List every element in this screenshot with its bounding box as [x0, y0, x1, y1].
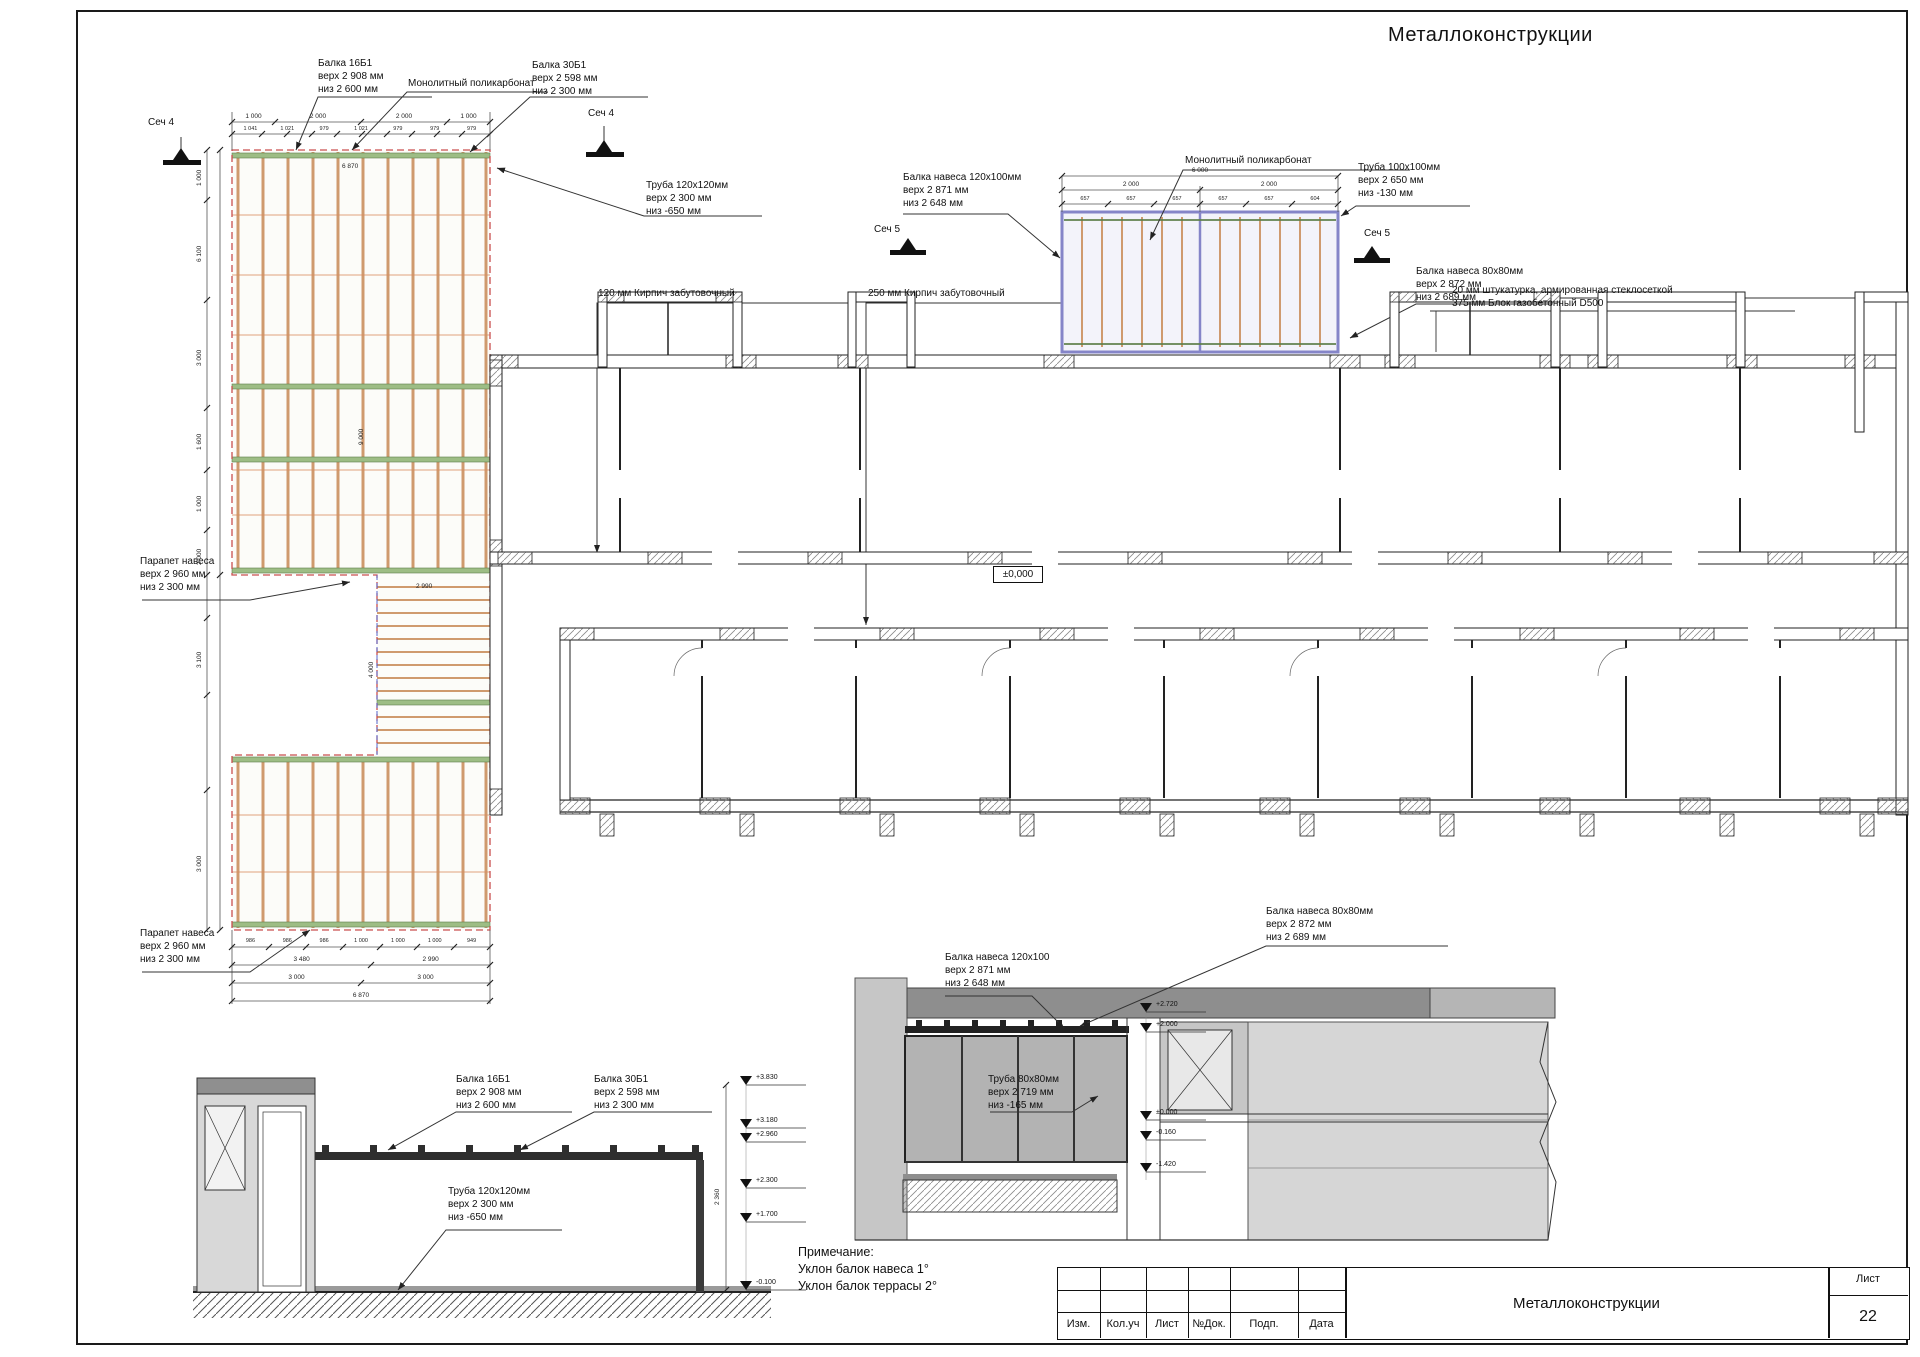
dimension-value: 1 000: [232, 113, 275, 120]
dimension-value: 3 480: [232, 956, 371, 963]
elevation-mark: +2.960: [756, 1131, 778, 1138]
dimension-value: 1 000: [416, 938, 453, 944]
dimension-value: 979: [416, 126, 453, 132]
dimension-value: 979: [379, 126, 416, 132]
label-line: верх 2 908 мм: [456, 1087, 522, 1100]
sheet-corner-title: Металлоконструкции: [1388, 24, 1593, 47]
dimension-value: 986: [269, 938, 306, 944]
label-line: Парапет навеса: [140, 556, 214, 569]
dimension-value: 1 041: [232, 126, 269, 132]
label-line: верх 2 300 мм: [646, 193, 728, 206]
label-line: верх 2 872 мм: [1266, 919, 1373, 932]
label-line: верх 2 871 мм: [945, 965, 1049, 978]
dimension-value: 949: [453, 938, 490, 944]
label-line: Труба 120х120мм: [646, 180, 728, 193]
label-line: низ -650 мм: [448, 1212, 530, 1225]
label-beam-30b1: Балка 30Б1 верх 2 598 мм низ 2 300 мм: [594, 1074, 660, 1112]
dimension-value: 3 000: [361, 974, 490, 981]
elevation-mark: +2.000: [1156, 1021, 1178, 1028]
section-mark-5: Сеч 5: [1364, 228, 1390, 239]
label-line: Балка навеса 120х100мм: [903, 172, 1021, 185]
label-canopy-beam-120x100: Балка навеса 120х100 верх 2 871 мм низ 2…: [945, 952, 1049, 990]
dimension-value: 2 000: [1062, 181, 1200, 188]
label-plaster: 20 мм штукатурка, армированная стеклосет…: [1452, 285, 1673, 298]
dimension-value: 1 000: [447, 113, 490, 120]
label-line: верх 2 650 мм: [1358, 175, 1440, 188]
title-block-col-izm: Изм.: [1057, 1318, 1100, 1330]
dimension-value: 3 000: [196, 856, 203, 872]
dimension-value: 1 000: [379, 938, 416, 944]
label-line: низ 2 300 мм: [532, 86, 598, 99]
label-line: Балка 30Б1: [532, 60, 598, 73]
terrace-beam-plan: [142, 92, 1124, 1004]
label-brick-250: 250 мм Кирпич забутовочный: [868, 288, 1005, 301]
label-line: верх 2 960 мм: [140, 941, 214, 954]
label-beam-16b1: Балка 16Б1 верх 2 908 мм низ 2 600 мм: [456, 1074, 522, 1112]
elevation-mark: +3.180: [756, 1117, 778, 1124]
level-zero-mark: ±0,000: [993, 566, 1043, 583]
elevation-mark: +2.300: [756, 1177, 778, 1184]
dimension-row: 3 000 3 000: [232, 974, 490, 981]
section-mark-4: Сеч 4: [588, 108, 614, 119]
label-tube-100: Труба 100х100мм верх 2 650 мм низ -130 м…: [1358, 162, 1440, 200]
section-mark-4: Сеч 4: [148, 117, 174, 128]
title-block-sheet-number: 22: [1828, 1308, 1908, 1326]
title-block-col-list: Лист: [1146, 1318, 1188, 1330]
label-line: верх 2 598 мм: [594, 1087, 660, 1100]
label-polycarbonate: Монолитный поликарбонат: [1185, 155, 1312, 168]
label-line: верх 2 908 мм: [318, 71, 384, 84]
dimension-value: 657: [1246, 196, 1292, 202]
floor-plan: [490, 292, 1908, 836]
dimension-value: 1 000: [196, 170, 203, 186]
label-beam-30b1: Балка 30Б1 верх 2 598 мм низ 2 300 мм: [532, 60, 598, 98]
dimension-value: 1 000: [343, 938, 380, 944]
label-line: верх 2 719 мм: [988, 1087, 1059, 1100]
label-line: низ -650 мм: [646, 206, 728, 219]
dimension-value: 6 870: [232, 992, 490, 999]
dimension-value: 657: [1154, 196, 1200, 202]
dimension-value: 2 990: [416, 583, 432, 590]
label-gas-block: 375 мм Блок газобетонный D500: [1452, 298, 1603, 311]
title-block-col-data: Дата: [1298, 1318, 1345, 1330]
dimension-value: 1 021: [343, 126, 380, 132]
label-canopy-beam-120x100: Балка навеса 120х100мм верх 2 871 мм низ…: [903, 172, 1021, 210]
label-line: Парапет навеса: [140, 928, 214, 941]
label-line: низ 2 648 мм: [903, 198, 1021, 211]
label-line: Балка навеса 120х100: [945, 952, 1049, 965]
elevation-mark: ±0.000: [1156, 1109, 1177, 1116]
note-line: Уклон балок навеса 1°: [798, 1261, 937, 1278]
label-line: Балка навеса 80х80мм: [1416, 266, 1523, 279]
label-tube-80: Труба 80х80мм верх 2 719 мм низ -165 мм: [988, 1074, 1059, 1112]
dimension-value: 657: [1108, 196, 1154, 202]
elevation-mark: -1.420: [1156, 1161, 1176, 1168]
dimension-value: 6 000: [1062, 167, 1338, 174]
label-canopy-beam-80x80: Балка навеса 80х80мм верх 2 872 мм низ 2…: [1266, 906, 1373, 944]
label-line: Балка 30Б1: [594, 1074, 660, 1087]
title-block-col-podp: Подп.: [1230, 1318, 1298, 1330]
dimension-value: 986: [232, 938, 269, 944]
label-line: низ 2 300 мм: [594, 1100, 660, 1113]
label-brick-120: 120 мм Кирпич забутовочный: [598, 288, 735, 301]
dimension-value: 3 000: [196, 350, 203, 366]
dimension-row: 986 986 986 1 000 1 000 1 000 949: [232, 938, 490, 944]
elevation-mark: +2.720: [1156, 1001, 1178, 1008]
dimension-value: 2 990: [371, 956, 490, 963]
label-line: верх 2 871 мм: [903, 185, 1021, 198]
dimension-value: 657: [1200, 196, 1246, 202]
label-line: низ 2 689 мм: [1266, 932, 1373, 945]
label-line: Балка 16Б1: [318, 58, 384, 71]
title-block-col-koluch: Кол.уч: [1100, 1318, 1146, 1330]
section-mark-5: Сеч 5: [874, 224, 900, 235]
dimension-row: 3 480 2 990: [232, 956, 490, 963]
note-title: Примечание:: [798, 1244, 937, 1261]
label-line: низ 2 600 мм: [456, 1100, 522, 1113]
label-line: Труба 120х120мм: [448, 1186, 530, 1199]
dimension-row: 2 000 2 000: [1062, 181, 1338, 188]
dimension-value: 979: [453, 126, 490, 132]
dimension-row: 657 657 657 657 657 604: [1062, 196, 1338, 202]
label-line: верх 2 960 мм: [140, 569, 214, 582]
elevation-mark: -0.100: [756, 1279, 776, 1286]
label-polycarbonate: Монолитный поликарбонат: [408, 78, 535, 91]
label-line: Труба 80х80мм: [988, 1074, 1059, 1087]
dimension-value: 9 000: [358, 429, 365, 445]
drawing-note: Примечание: Уклон балок навеса 1° Уклон …: [798, 1244, 937, 1295]
dimension-value: 2 000: [361, 113, 447, 120]
dimension-value: 6 870: [342, 163, 358, 170]
label-line: низ 2 300 мм: [140, 954, 214, 967]
label-line: верх 2 598 мм: [532, 73, 598, 86]
elevation-mark: -0.160: [1156, 1129, 1176, 1136]
label-line: низ -165 мм: [988, 1100, 1059, 1113]
note-line: Уклон балок террасы 2°: [798, 1278, 937, 1295]
dimension-value: 2 000: [196, 549, 203, 565]
label-line: Труба 100х100мм: [1358, 162, 1440, 175]
label-line: низ 2 648 мм: [945, 978, 1049, 991]
drawing-sheet: Металлоконструкции Балка 16Б1 верх 2 908…: [0, 0, 1920, 1357]
label-tube-120: Труба 120х120мм верх 2 300 мм низ -650 м…: [448, 1186, 530, 1224]
dimension-value: 1 000: [196, 496, 203, 512]
title-block-col-dok: №Док.: [1188, 1318, 1230, 1330]
label-line: Балка навеса 80х80мм: [1266, 906, 1373, 919]
dimension-value: 979: [306, 126, 343, 132]
label-parapet: Парапет навеса верх 2 960 мм низ 2 300 м…: [140, 928, 214, 966]
dimension-value: 986: [306, 938, 343, 944]
dimension-value: 2 000: [275, 113, 361, 120]
label-tube-120: Труба 120х120мм верх 2 300 мм низ -650 м…: [646, 180, 728, 218]
dimension-value: 604: [1292, 196, 1338, 202]
label-line: низ -130 мм: [1358, 188, 1440, 201]
title-block-line: [1057, 1312, 1345, 1313]
dimension-value: 1 600: [196, 434, 203, 450]
label-line: низ 2 300 мм: [140, 582, 214, 595]
label-line: низ 2 600 мм: [318, 84, 384, 97]
dimension-row: 1 041 1 021 979 1 021 979 979 979: [232, 126, 490, 132]
dimension-value: 6 100: [196, 246, 203, 262]
title-block-line: [1828, 1295, 1908, 1296]
dimension-value: 657: [1062, 196, 1108, 202]
title-block-line: [1057, 1290, 1345, 1291]
dimension-value: 3 100: [196, 652, 203, 668]
dimension-value: 4 000: [368, 662, 375, 678]
elevation-mark: +3.830: [756, 1074, 778, 1081]
label-line: верх 2 300 мм: [448, 1199, 530, 1212]
dimension-value: 2 360: [714, 1189, 721, 1205]
label-line: Балка 16Б1: [456, 1074, 522, 1087]
title-block-doc-title: Металлоконструкции: [1345, 1295, 1828, 1312]
label-parapet: Парапет навеса верх 2 960 мм низ 2 300 м…: [140, 556, 214, 594]
label-beam-16b1: Балка 16Б1 верх 2 908 мм низ 2 600 мм: [318, 58, 384, 96]
dimension-row: 1 000 2 000 2 000 1 000: [232, 113, 490, 120]
dimension-value: 3 000: [232, 974, 361, 981]
dimension-value: 2 000: [1200, 181, 1338, 188]
elevation-mark: +1.700: [756, 1211, 778, 1218]
title-block-sheet-label: Лист: [1828, 1273, 1908, 1285]
dimension-value: 1 021: [269, 126, 306, 132]
